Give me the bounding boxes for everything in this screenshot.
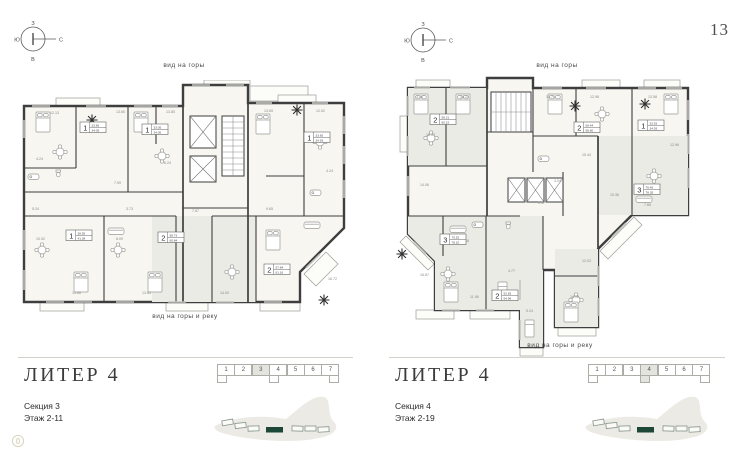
room-area-label: 13.64 bbox=[142, 291, 151, 295]
svg-text:38.55: 38.55 bbox=[78, 231, 86, 235]
section-label-right: Секция 4 bbox=[395, 400, 435, 412]
floor-plan-section-4: 3.4013.2318.0710.7412.9813.5812.9615.447… bbox=[386, 76, 716, 366]
compass-north: С bbox=[59, 38, 63, 44]
compass-east: В bbox=[31, 57, 35, 63]
section-cell-7: 7 bbox=[692, 364, 710, 376]
shaded-unit bbox=[152, 216, 256, 302]
svg-text:75.52: 75.52 bbox=[452, 235, 460, 239]
room-area-label: 12.13 bbox=[50, 111, 59, 115]
room-area-label: 12.98 bbox=[590, 95, 599, 99]
apartment-tag: 258.7360.84 bbox=[158, 232, 184, 243]
svg-text:2: 2 bbox=[161, 233, 165, 242]
room-area-label: 4.24 bbox=[36, 157, 43, 161]
footer-divider-left bbox=[18, 357, 353, 358]
svg-text:34.05: 34.05 bbox=[92, 129, 100, 133]
room-area-label: 13.65 bbox=[116, 110, 125, 114]
room-area-label: 3.40 bbox=[416, 95, 423, 99]
apartment-tag: 376.4578.35 bbox=[634, 184, 660, 195]
room-area-label: 7.67 bbox=[192, 209, 199, 213]
room-area-label: 8.09 bbox=[116, 237, 123, 241]
apartment-tag: 252.8354.96 bbox=[492, 290, 518, 301]
svg-text:60.15: 60.15 bbox=[442, 121, 450, 125]
svg-text:2: 2 bbox=[433, 115, 437, 124]
room-area-label: 10.92 bbox=[36, 237, 45, 241]
floors-label-left: Этаж 2-11 bbox=[24, 412, 63, 424]
apartment-tag: 375.5278.10 bbox=[440, 234, 466, 245]
svg-text:2: 2 bbox=[577, 123, 581, 132]
section-cell-7: 7 bbox=[321, 364, 339, 376]
svg-text:60.84: 60.84 bbox=[170, 239, 178, 243]
compass-west: З bbox=[31, 21, 35, 27]
svg-text:1: 1 bbox=[69, 231, 73, 240]
compass-north: С bbox=[449, 39, 453, 45]
section-cell-5: 5 bbox=[287, 364, 305, 376]
room-area-label: 3.73 bbox=[126, 207, 133, 211]
room-area-label: 7.66 bbox=[644, 203, 651, 207]
room-area-label: 13.85 bbox=[166, 110, 175, 114]
section-cell-2: 2 bbox=[605, 364, 623, 376]
section-cell-1: 1 bbox=[217, 364, 235, 376]
compass-rose-right: З Ю С В bbox=[400, 17, 458, 67]
room-area-label: 2.57 bbox=[538, 201, 545, 205]
section-cell-3: 3 bbox=[252, 364, 270, 376]
view-label-top-left: вид на горы bbox=[150, 62, 218, 69]
svg-text:41.38: 41.38 bbox=[78, 237, 86, 241]
liter4-highlight bbox=[637, 427, 654, 433]
apartment-tag: 258.2160.15 bbox=[430, 114, 456, 125]
svg-text:33.53: 33.53 bbox=[650, 121, 658, 125]
section-tab bbox=[700, 375, 710, 383]
room-area-label: 14.06 bbox=[420, 183, 429, 187]
room-area-label: 13.23 bbox=[460, 95, 469, 99]
svg-text:57.84: 57.84 bbox=[276, 265, 284, 269]
svg-text:52.83: 52.83 bbox=[504, 291, 512, 295]
section-cell-3: 3 bbox=[623, 364, 641, 376]
section-cell-1: 1 bbox=[588, 364, 606, 376]
section-cell-4: 4 bbox=[640, 364, 658, 376]
room-area-label: 10.74 bbox=[546, 95, 555, 99]
room-area-label: 5.24 bbox=[32, 207, 39, 211]
svg-text:34.93: 34.93 bbox=[650, 127, 658, 131]
footer-divider-right bbox=[389, 357, 725, 358]
room-area-label: 13.58 bbox=[648, 95, 657, 99]
section-tab bbox=[217, 375, 227, 383]
room-area-label: 14.00 bbox=[570, 295, 579, 299]
apartment-tag: 133.0534.05 bbox=[142, 124, 168, 135]
svg-text:1: 1 bbox=[641, 121, 645, 130]
floors-label-right: Этаж 2-19 bbox=[395, 412, 435, 424]
room-area-label: 9.65 bbox=[266, 207, 273, 211]
section-strip-right: 1234567 bbox=[588, 364, 714, 386]
section-cell-6: 6 bbox=[675, 364, 693, 376]
svg-text:78.35: 78.35 bbox=[646, 191, 654, 195]
svg-text:58.73: 58.73 bbox=[170, 233, 178, 237]
room-area-label: 16.87 bbox=[420, 273, 429, 277]
room-area-label: 11.96 bbox=[470, 295, 479, 299]
view-label-bottom-right: вид на горы и реку bbox=[505, 342, 615, 349]
svg-text:1: 1 bbox=[83, 123, 87, 132]
apartment-tag: 256.4458.60 bbox=[574, 122, 600, 133]
svg-text:1: 1 bbox=[145, 125, 149, 134]
compass-east: В bbox=[421, 58, 425, 64]
room-area-label: 6.24 bbox=[164, 161, 171, 165]
svg-text:78.10: 78.10 bbox=[452, 241, 460, 245]
svg-text:2: 2 bbox=[267, 265, 271, 274]
apartment-tag: 133.5334.93 bbox=[638, 120, 664, 131]
room-area-label: 12.52 bbox=[316, 109, 325, 113]
svg-text:34.05: 34.05 bbox=[154, 131, 162, 135]
room-area-label: 12.96 bbox=[670, 143, 679, 147]
room-area-label: 16.72 bbox=[328, 277, 337, 281]
svg-text:34.93: 34.93 bbox=[316, 139, 324, 143]
svg-text:58.60: 58.60 bbox=[586, 129, 594, 133]
brand-mark bbox=[11, 434, 25, 448]
section-tab bbox=[588, 375, 598, 383]
room-area-label: 18.07 bbox=[426, 133, 435, 137]
room-area-label: 7.59 bbox=[114, 181, 121, 185]
section-label-left: Секция 3 bbox=[24, 400, 63, 412]
room-area-label: 13.66 bbox=[72, 291, 81, 295]
stairs bbox=[491, 92, 531, 132]
svg-text:33.65: 33.65 bbox=[316, 133, 324, 137]
floor-plan-section-3: 12.1313.6513.8513.6512.524.247.596.244.2… bbox=[16, 80, 361, 338]
compass-south: Ю bbox=[14, 38, 20, 44]
site-map-right bbox=[583, 390, 719, 448]
svg-text:54.96: 54.96 bbox=[504, 297, 512, 301]
view-label-bottom-left: вид на горы и реку bbox=[135, 313, 235, 320]
section-cell-5: 5 bbox=[658, 364, 676, 376]
section-cell-2: 2 bbox=[234, 364, 252, 376]
compass-west: З bbox=[421, 22, 425, 28]
svg-text:1: 1 bbox=[307, 133, 311, 142]
apartment-tag: 138.5541.38 bbox=[66, 230, 92, 241]
section-cell-4: 4 bbox=[269, 364, 287, 376]
page-number: 13 bbox=[710, 20, 729, 40]
svg-text:3: 3 bbox=[637, 185, 641, 194]
section-strip-left: 1234567 bbox=[217, 364, 343, 386]
svg-text:3: 3 bbox=[443, 235, 447, 244]
liter4-highlight bbox=[266, 427, 283, 433]
section-cell-6: 6 bbox=[304, 364, 322, 376]
apartment-tag: 133.6534.05 bbox=[80, 122, 106, 133]
room-area-label: 4.04 bbox=[554, 179, 561, 183]
svg-text:33.65: 33.65 bbox=[92, 123, 100, 127]
stairs bbox=[222, 116, 244, 176]
section-tab bbox=[640, 375, 650, 383]
site-map-left bbox=[212, 390, 348, 448]
compass-south: Ю bbox=[404, 39, 410, 45]
room-area-label: 4.77 bbox=[508, 269, 515, 273]
room-area-label: 12.03 bbox=[582, 259, 591, 263]
apartment-tag: 133.6534.93 bbox=[304, 132, 330, 143]
svg-text:76.45: 76.45 bbox=[646, 185, 654, 189]
svg-text:58.21: 58.21 bbox=[442, 115, 450, 119]
apartment-tag: 257.8461.16 bbox=[264, 264, 290, 275]
svg-text:33.05: 33.05 bbox=[154, 125, 162, 129]
svg-text:61.16: 61.16 bbox=[276, 271, 284, 275]
svg-text:56.44: 56.44 bbox=[586, 123, 594, 127]
section-tab bbox=[269, 375, 279, 383]
room-area-label: 13.65 bbox=[264, 109, 273, 113]
room-area-label: 15.44 bbox=[582, 153, 591, 157]
plan-title-left: ЛИТЕР 4 bbox=[24, 364, 120, 387]
view-label-top-right: вид на горы bbox=[523, 62, 591, 69]
room-area-label: 14.00 bbox=[220, 291, 229, 295]
svg-text:2: 2 bbox=[495, 291, 499, 300]
plan-title-right: ЛИТЕР 4 bbox=[395, 364, 491, 387]
room-area-label: 10.36 bbox=[610, 193, 619, 197]
compass-rose-left: З Ю С В bbox=[10, 16, 68, 66]
section-tab bbox=[329, 375, 339, 383]
room-area-label: 4.24 bbox=[326, 169, 333, 173]
room-area-label: 5.24 bbox=[526, 309, 533, 313]
